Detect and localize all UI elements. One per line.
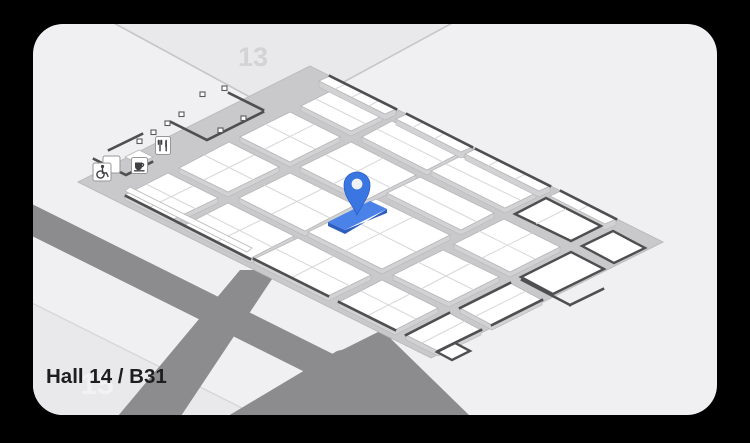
pin-hole bbox=[352, 179, 363, 190]
venue-map-card[interactable]: 13 15 bbox=[33, 24, 717, 415]
screenshot-stage: 13 15 bbox=[0, 0, 750, 443]
hall-map-svg: 13 15 bbox=[33, 24, 717, 415]
hall-13-label: 13 bbox=[238, 42, 268, 72]
restaurant-icon[interactable] bbox=[156, 137, 171, 155]
current-location-label: Hall 14 / B31 bbox=[46, 365, 167, 388]
coffee-icon[interactable] bbox=[132, 158, 148, 174]
